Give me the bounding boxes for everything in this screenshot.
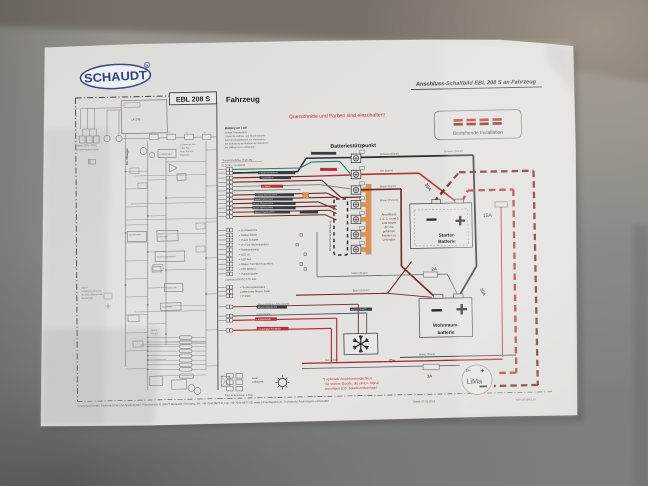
svg-text:+ Dauer Wohnraumbat.: + Dauer Wohnraumbat. [256,193,278,196]
svg-text:Braun (16mm²): Braun (16mm²) [353,289,370,292]
svg-text:batterie: batterie [437,330,454,335]
svg-text:+ Dauerplus Kühlgerät: + Dauerplus Kühlgerät [258,327,281,330]
svg-text:E-2418 — Nr.4/2043: E-2418 — Nr.4/2043 [222,164,245,167]
svg-text:Zündwächter: Zündwächter [165,286,177,289]
svg-text:Masse Innenleuchten: Masse Innenleuchten [255,210,276,213]
svg-text:Minus Kühlschrank: Minus Kühlschrank [258,306,278,309]
svg-text:D+: D+ [389,358,395,363]
svg-text:+ Trockenspeisewand: + Trockenspeisewand [240,285,266,290]
svg-text:Batterie-: Batterie- [158,232,166,235]
svg-text:+ Masse Schalt: + Masse Schalt [239,233,257,237]
svg-text:Ladewandler: Ladewandler [159,153,172,156]
svg-text:Stand: 07.01.2013: Stand: 07.01.2013 [413,399,436,403]
svg-text:Trennrelais: Trennrelais [158,236,168,238]
svg-text:Masse Wohnraumbat.: Masse Wohnraumbat. [253,202,274,205]
svg-text:Battery on / off: Battery on / off [225,126,248,130]
svg-text:Schwarz (6mm²): Schwarz (6mm²) [380,152,399,156]
svg-text:weiß (0,75mm²): weiß (0,75mm²) [351,308,367,311]
svg-text:Braun (6mm²): Braun (6mm²) [380,184,396,188]
svg-text:+ Haupt Schalter: + Haupt Schalter [239,237,259,241]
svg-text:+ Pumpe: + Pumpe [240,294,251,298]
svg-text:+ LED Lb: + LED Lb [239,252,251,256]
svg-text:Rot (6mm²): Rot (6mm²) [380,168,393,172]
svg-text:+ LED Aux: + LED Aux [239,257,252,261]
svg-text:+ Wohnraumbatterie: + Wohnraumbatterie [259,171,279,174]
svg-text:Max. Fahrers: Max. Fahrers [180,150,194,153]
svg-text:Ladebooster Masse Türler: Ladebooster Masse Türler [240,289,270,294]
svg-text:Masse Wohnraumbat.: Masse Wohnraumbat. [253,206,274,209]
svg-text:EBL 208 S: EBL 208 S [176,96,211,104]
svg-text:+ Radiospeisung: + Radiospeisung [239,247,259,251]
svg-text:Braun (2,5mm²): Braun (2,5mm²) [380,198,398,202]
svg-text:Signalwandler: Signalwandler [128,234,141,236]
svg-text:+ Startbatterie: + Startbatterie [261,176,275,179]
svg-text:bei Stilllegung zu entnehmen: bei Stilllegung zu entnehmen [225,146,256,150]
svg-text:Kühlschrank: Kühlschrank [257,313,272,316]
svg-text:+) Signal: +) Signal [262,186,271,188]
svg-text:Fahrzeug: Fahrzeug [226,95,260,105]
svg-text:Lichtmaschine-: Lichtmaschine- [180,143,196,146]
svg-text:+ LED Blinkrel.: + LED Blinkrel. [239,267,257,271]
svg-text:Dab (1mm²): Dab (1mm²) [325,359,338,362]
svg-text:Tabl. Außensteuer 2.5kΩ: Tabl. Außensteuer 2.5kΩ [225,394,253,398]
svg-text:Masse (braun): Masse (braun) [351,272,367,275]
svg-text:Ader Typ /: Ader Typ / [180,147,191,150]
svg-text:3A: 3A [427,373,432,378]
svg-text:Masse Kühlschrank: Masse Kühlschrank [255,198,274,201]
svg-text:+ (+) Türe Wohnraumlicht: + (+) Türe Wohnraumlicht [239,242,269,247]
svg-text:+ Kühlschrank: + Kühlschrank [256,318,272,321]
svg-text:Masse (braun): Masse (braun) [419,353,435,356]
svg-text:verbinden: verbinden [383,237,396,241]
svg-text:LA 248 ...: LA 248 ... [131,117,144,121]
svg-text:+ (+) Dauerplus: + (+) Dauerplus [239,228,258,232]
svg-text:Batteriestützpunkt: Batteriestützpunkt [330,143,376,150]
svg-text:Betriebsl.: Betriebsl. [180,154,190,157]
svg-text:+ Pumpenquelle: + Pumpenquelle [239,271,258,275]
svg-text:Ladegerät: Ladegerät [252,380,264,383]
svg-text:+ Masse Türe Wohnraumlicht: + Masse Türe Wohnraumlicht [239,261,273,266]
svg-text:2A: 2A [431,266,437,271]
svg-text:Spannungswächter: Spannungswächter [157,255,176,258]
svg-text:Minusschiene Verteilung: Minusschiene Verteilung [328,220,332,251]
